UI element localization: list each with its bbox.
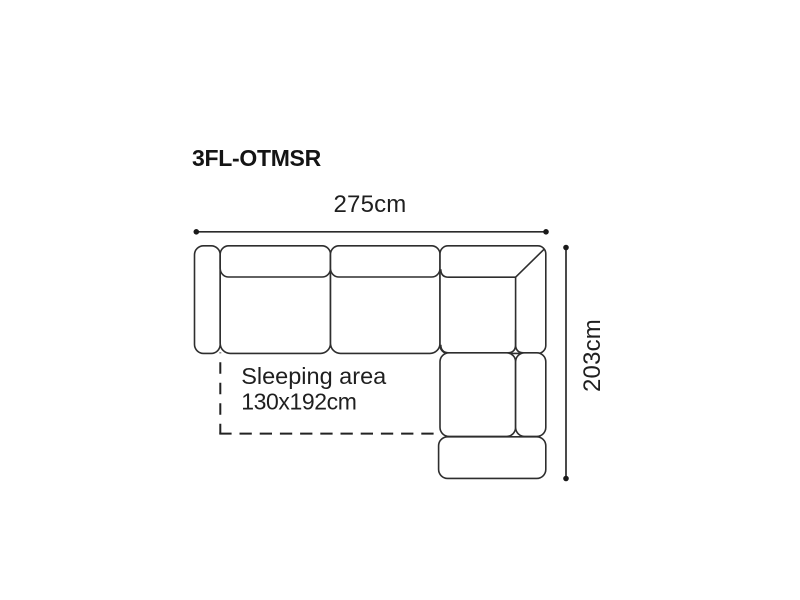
svg-text:275cm: 275cm [333,191,406,218]
svg-text:203cm: 203cm [579,319,606,392]
svg-text:Sleeping area: Sleeping area [241,363,387,389]
svg-text:3FL-OTMSR: 3FL-OTMSR [192,145,322,171]
svg-text:130x192cm: 130x192cm [241,389,356,415]
